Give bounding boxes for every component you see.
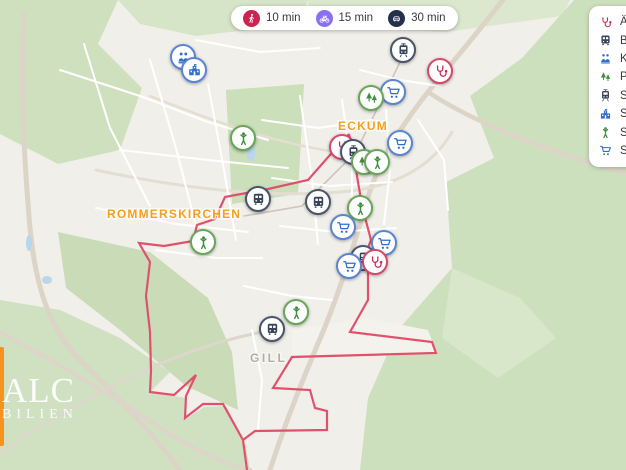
legend-item-playground[interactable]: Sp xyxy=(599,123,626,141)
tram-icon xyxy=(599,89,612,102)
map-app: ECKUM ROMMERSKIRCHEN GILL ALC BILIEN 10 … xyxy=(0,0,626,470)
map-marker-cart[interactable] xyxy=(387,130,413,156)
legend-item-label: Sp xyxy=(620,127,626,139)
person-icon xyxy=(599,126,612,139)
map-marker-person[interactable] xyxy=(364,149,390,175)
legend-item-doctors[interactable]: Ärz xyxy=(599,13,626,31)
cart-icon xyxy=(393,136,408,151)
travel-time-bike[interactable]: 15 min xyxy=(316,10,374,27)
person-icon xyxy=(353,201,368,216)
school-icon xyxy=(599,108,612,121)
car-icon xyxy=(388,10,405,27)
map-label-rommerskirchen: ROMMERSKIRCHEN xyxy=(107,207,241,221)
school-icon xyxy=(187,63,202,78)
map-marker-bus[interactable] xyxy=(259,316,285,342)
travel-time-label: 10 min xyxy=(266,12,301,24)
cart-icon xyxy=(342,259,357,274)
legend-item-school[interactable]: Sc xyxy=(599,105,626,123)
travel-time-label: 15 min xyxy=(339,12,374,24)
travel-time-drive[interactable]: 30 min xyxy=(388,10,446,27)
person-icon xyxy=(196,235,211,250)
map-marker-person[interactable] xyxy=(230,125,256,151)
person-icon xyxy=(289,305,304,320)
travel-time-walk[interactable]: 10 min xyxy=(243,10,301,27)
cart-icon xyxy=(599,144,612,157)
legend-item-bus[interactable]: Bu xyxy=(599,31,626,49)
legend-item-park[interactable]: Pa xyxy=(599,68,626,86)
tram-icon xyxy=(396,43,411,58)
trees-icon xyxy=(364,91,379,106)
map-marker-bus[interactable] xyxy=(305,189,331,215)
stethoscope-icon xyxy=(599,16,612,29)
bus-icon xyxy=(311,195,326,210)
map-marker-stethoscope[interactable] xyxy=(427,58,453,84)
map-marker-person[interactable] xyxy=(190,229,216,255)
map-marker-cart[interactable] xyxy=(330,214,356,240)
legend-item-kindergarten[interactable]: Kin xyxy=(599,50,626,68)
map-label-eckum: ECKUM xyxy=(338,119,388,133)
legend-item-label: Bu xyxy=(620,35,626,47)
map-marker-school[interactable] xyxy=(181,57,207,83)
map-marker-trees[interactable] xyxy=(358,85,384,111)
map-marker-person[interactable] xyxy=(283,299,309,325)
legend-item-rail[interactable]: Sc xyxy=(599,87,626,105)
map-canvas[interactable]: ECKUM ROMMERSKIRCHEN GILL xyxy=(0,0,626,470)
poi-legend-card: ÄrzBuKinPaScScSpSu xyxy=(589,6,626,167)
map-marker-bus[interactable] xyxy=(245,186,271,212)
stethoscope-icon xyxy=(433,64,448,79)
bike-icon xyxy=(316,10,333,27)
stethoscope-icon xyxy=(368,255,383,270)
bus-icon xyxy=(265,322,280,337)
cart-icon xyxy=(386,85,401,100)
bus-icon xyxy=(251,192,266,207)
travel-time-pill: 10 min15 min30 min xyxy=(231,6,458,30)
bus-icon xyxy=(599,34,612,47)
cart-icon xyxy=(377,236,392,251)
legend-item-label: Sc xyxy=(620,108,626,120)
legend-item-label: Ärz xyxy=(620,16,626,28)
walk-icon xyxy=(243,10,260,27)
person-icon xyxy=(236,131,251,146)
map-marker-tram[interactable] xyxy=(390,37,416,63)
map-marker-stethoscope[interactable] xyxy=(362,249,388,275)
travel-time-label: 30 min xyxy=(411,12,446,24)
map-label-gill: GILL xyxy=(250,351,287,365)
kindergarten-icon xyxy=(599,52,612,65)
map-marker-cart[interactable] xyxy=(380,79,406,105)
cart-icon xyxy=(336,220,351,235)
legend-item-label: Sc xyxy=(620,90,626,102)
trees-icon xyxy=(599,71,612,84)
map-marker-cart[interactable] xyxy=(336,253,362,279)
legend-item-label: Pa xyxy=(620,71,626,83)
legend-item-label: Su xyxy=(620,145,626,157)
legend-item-supermarket[interactable]: Su xyxy=(599,142,626,160)
person-icon xyxy=(370,155,385,170)
legend-item-label: Kin xyxy=(620,53,626,65)
